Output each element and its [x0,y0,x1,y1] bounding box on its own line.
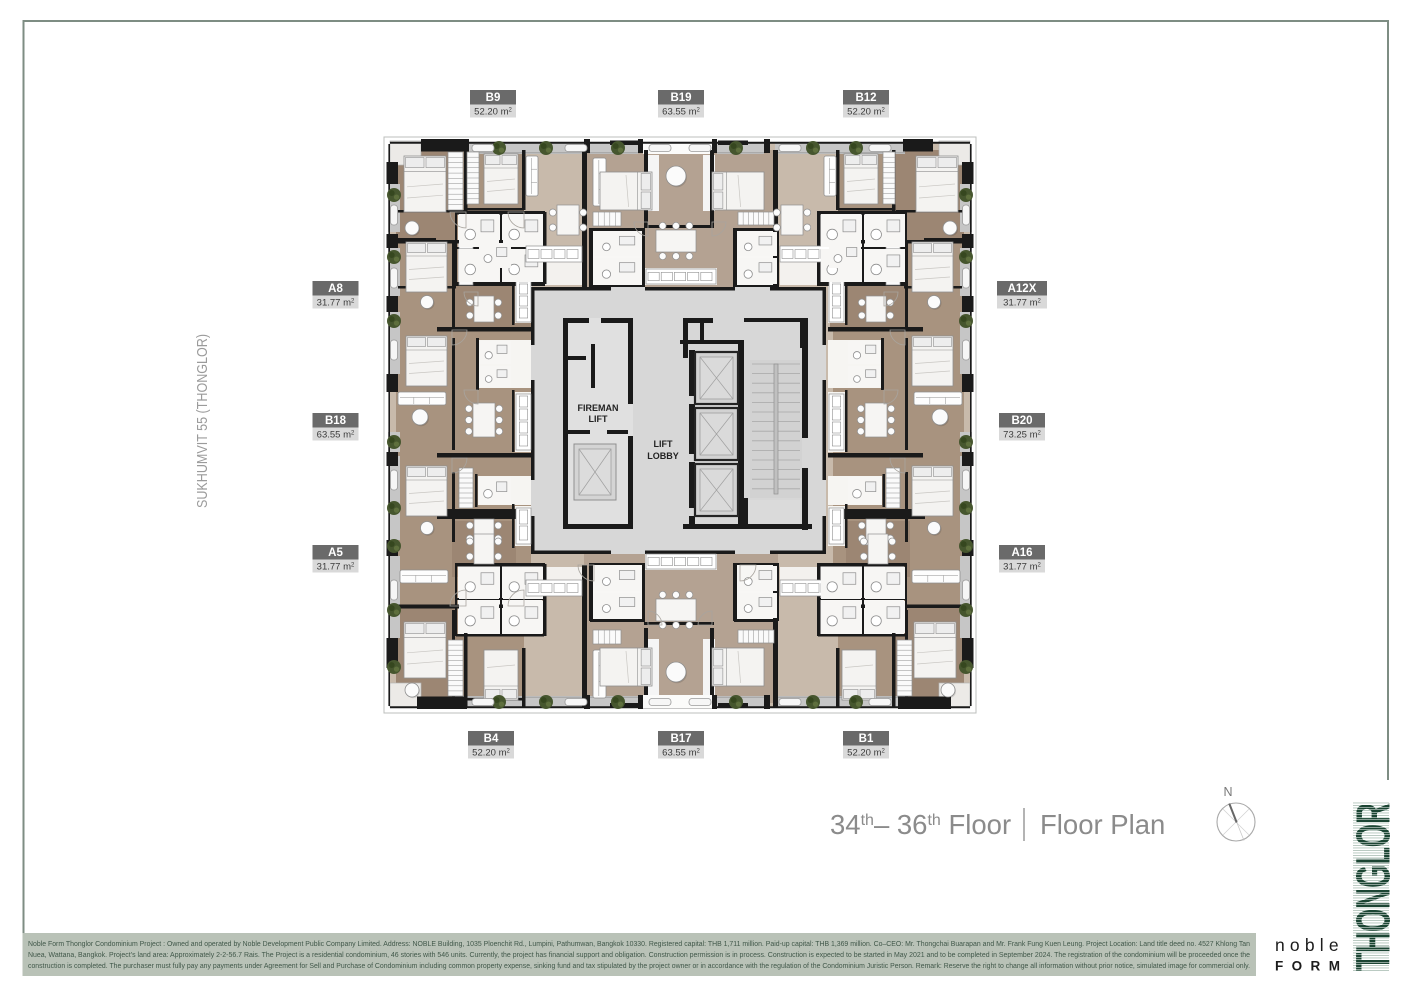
svg-text:63.55 m2: 63.55 m2 [317,430,355,441]
svg-text:31.77 m2: 31.77 m2 [1003,562,1041,573]
svg-text:34th– 36th Floor: 34th– 36th Floor [830,809,1011,840]
svg-text:B9: B9 [486,92,501,104]
svg-text:52.20 m2: 52.20 m2 [472,748,510,759]
svg-text:A8: A8 [328,283,343,295]
svg-text:construction is completed. The: construction is completed. The purchaser… [28,961,1250,970]
svg-text:B18: B18 [325,415,347,427]
svg-text:31.77 m2: 31.77 m2 [317,298,355,309]
svg-text:52.20 m2: 52.20 m2 [847,107,885,118]
svg-text:Noble Form Thonglor Condominiu: Noble Form Thonglor Condominium Project … [28,939,1250,948]
svg-text:63.55 m2: 63.55 m2 [662,107,700,118]
svg-text:B17: B17 [670,733,691,745]
svg-text:52.20 m2: 52.20 m2 [847,748,885,759]
svg-text:B20: B20 [1011,415,1032,427]
svg-text:B12: B12 [855,92,876,104]
svg-text:31.77 m2: 31.77 m2 [317,562,355,573]
svg-text:A16: A16 [1011,547,1032,559]
svg-text:FIREMAN: FIREMAN [578,403,619,413]
svg-text:B19: B19 [670,92,691,104]
svg-text:LIFT: LIFT [589,414,608,424]
svg-text:31.77 m2: 31.77 m2 [1003,298,1041,309]
svg-text:63.55 m2: 63.55 m2 [662,748,700,759]
svg-text:N: N [1223,785,1232,799]
svg-text:Floor Plan: Floor Plan [1040,809,1165,840]
svg-text:FORM: FORM [1275,959,1348,974]
svg-text:A5: A5 [328,547,343,559]
svg-text:B4: B4 [484,733,499,745]
svg-text:SUKHUMVIT 55 (THONGLOR): SUKHUMVIT 55 (THONGLOR) [195,334,211,508]
svg-text:B1: B1 [859,733,874,745]
svg-text:52.20 m2: 52.20 m2 [474,107,512,118]
svg-text:noble: noble [1275,935,1344,955]
svg-text:LIFT: LIFT [654,439,673,449]
svg-text:A12X: A12X [1008,283,1037,295]
svg-text:Nuea, Wattana, Bangkok. Projec: Nuea, Wattana, Bangkok. Project’s land a… [28,950,1250,959]
svg-text:LOBBY: LOBBY [647,451,679,461]
svg-text:73.25 m2: 73.25 m2 [1003,430,1041,441]
